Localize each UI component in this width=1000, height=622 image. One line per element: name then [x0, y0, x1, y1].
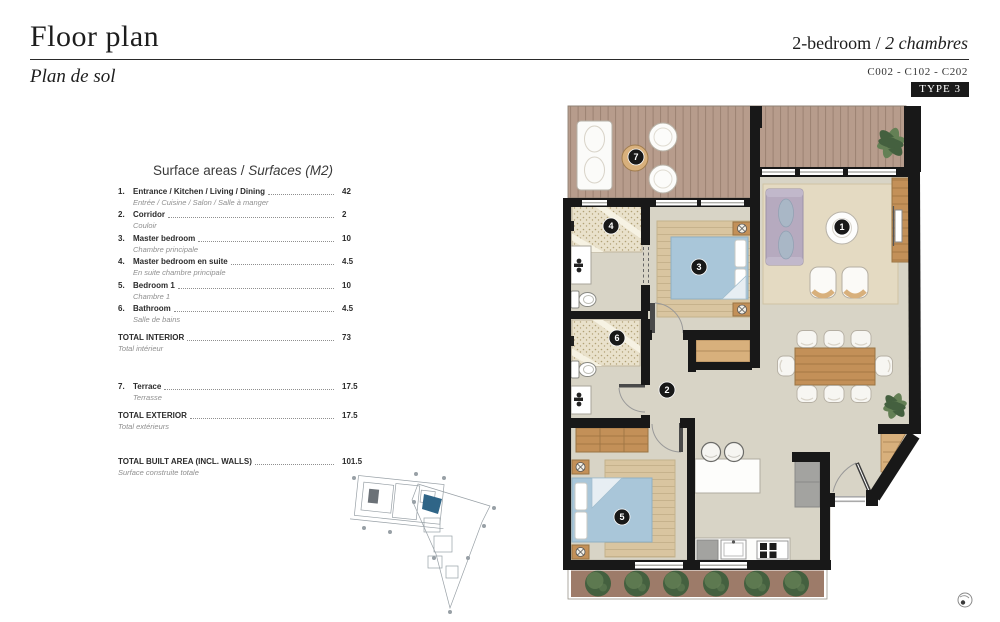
- label-en: Bedroom 1: [133, 281, 175, 291]
- label-fr: Total intérieur: [118, 344, 368, 353]
- dotted-leader: [164, 389, 334, 390]
- label-en: TOTAL INTERIOR: [118, 333, 184, 343]
- publisher-logo-icon: [958, 593, 972, 607]
- brochure-page: Floor plan Plan de sol 2-bedroom / 2 cha…: [0, 0, 1000, 622]
- surface-item-row: 6.Bathroom4.5Salle de bains: [118, 304, 368, 324]
- label-fr: Salle de bains: [133, 315, 368, 324]
- bush-icon: [744, 571, 770, 597]
- living-room: [763, 178, 909, 304]
- room-marker-5: 5: [614, 509, 630, 525]
- item-number: 2.: [118, 210, 133, 230]
- dining-chair: [851, 331, 871, 348]
- surface-areas-heading: Surface areas / Surfaces (M2): [118, 163, 368, 178]
- room-marker-7: 7: [628, 149, 644, 165]
- dotted-leader: [255, 464, 334, 465]
- label-fr: Total extérieurs: [118, 422, 368, 431]
- dotted-leader: [168, 217, 334, 218]
- label-fr: En suite chambre principale: [133, 268, 368, 277]
- svg-text:4: 4: [608, 221, 613, 231]
- svg-text:3: 3: [696, 262, 701, 272]
- surface-total-row: TOTAL EXTERIOR17.5Total extérieurs: [118, 411, 368, 431]
- dotted-leader: [198, 241, 334, 242]
- floor-plan-drawing: 1234567: [540, 95, 1000, 622]
- dining-chair: [876, 356, 893, 376]
- item-number: 1.: [118, 187, 133, 207]
- label-en: Entrance / Kitchen / Living / Dining: [133, 187, 265, 197]
- surface-rows: 1.Entrance / Kitchen / Living / Dining42…: [118, 187, 368, 478]
- door-leaf: [650, 303, 655, 333]
- pillow: [735, 240, 746, 267]
- area-value: 17.5: [337, 411, 368, 421]
- room-marker-1: 1: [834, 219, 850, 235]
- toilet-icon: [571, 361, 596, 378]
- dotted-leader: [190, 418, 334, 419]
- dining-chair: [778, 356, 795, 376]
- dining-chair: [797, 331, 817, 348]
- pillow: [575, 483, 587, 510]
- item-number: 6.: [118, 304, 133, 324]
- sun-lounger: [577, 121, 612, 190]
- planter-strip: [568, 568, 827, 599]
- fan-icon: [576, 463, 585, 472]
- highlighted-unit: [422, 494, 442, 514]
- dining-chair: [824, 386, 844, 403]
- master-bedroom: [650, 221, 757, 333]
- fridge: [795, 458, 820, 507]
- label-fr: Terrasse: [133, 393, 368, 402]
- label-fr: Chambre 1: [133, 292, 368, 301]
- pillow: [575, 512, 587, 539]
- header-rule: [30, 59, 969, 60]
- surface-heading-fr: Surfaces (M2): [248, 163, 333, 178]
- area-value: 10: [337, 281, 368, 291]
- wardrobe: [576, 427, 648, 452]
- dotted-leader: [268, 194, 334, 195]
- svg-text:2: 2: [664, 385, 669, 395]
- bush-icon: [783, 571, 809, 597]
- armchair: [842, 267, 868, 298]
- surface-total-row: TOTAL BUILT AREA (INCL. WALLS)101.5Surfa…: [118, 457, 368, 477]
- item-number: 7.: [118, 382, 133, 402]
- armchair: [810, 267, 836, 298]
- item-number: 3.: [118, 234, 133, 254]
- stove-icon: [757, 541, 788, 559]
- dotted-leader: [231, 264, 334, 265]
- room-marker-4: 4: [603, 218, 619, 234]
- fan-icon: [576, 548, 585, 557]
- bar-stool: [725, 443, 744, 462]
- sink-icon: [721, 540, 746, 559]
- unit-type-label: 2-bedroom / 2 chambres: [792, 33, 968, 54]
- label-en: Bathroom: [133, 304, 171, 314]
- item-number: 5.: [118, 281, 133, 301]
- dining-chair: [851, 386, 871, 403]
- svg-text:7: 7: [633, 152, 638, 162]
- svg-text:5: 5: [619, 512, 624, 522]
- label-en: Corridor: [133, 210, 165, 220]
- corridor-closet: [696, 340, 750, 362]
- svg-text:1: 1: [839, 222, 844, 232]
- room-marker-6: 6: [609, 330, 625, 346]
- area-value: 4.5: [337, 304, 368, 314]
- page-title: Floor plan: [30, 20, 159, 54]
- site-plan-thumbnail: [350, 462, 500, 614]
- tv-icon: [895, 210, 902, 242]
- label-en: Master bedroom: [133, 234, 195, 244]
- label-fr: Chambre principale: [133, 245, 368, 254]
- label-en: TOTAL EXTERIOR: [118, 411, 187, 421]
- bush-icon: [585, 571, 611, 597]
- svg-text:6: 6: [614, 333, 619, 343]
- terrace-chair: [649, 165, 677, 193]
- dotted-leader: [178, 288, 334, 289]
- fan-icon: [738, 305, 747, 314]
- terrace-chair: [649, 123, 677, 151]
- sofa-cushion: [779, 231, 794, 259]
- unit-type-en: 2-bedroom /: [792, 33, 885, 53]
- surface-item-row: 2.Corridor2Couloir: [118, 210, 368, 230]
- bush-icon: [663, 571, 689, 597]
- bar-stool: [702, 443, 721, 462]
- item-number: 4.: [118, 257, 133, 277]
- surface-item-row: 1.Entrance / Kitchen / Living / Dining42…: [118, 187, 368, 207]
- dotted-leader: [187, 340, 334, 341]
- label-fr: Surface construite totale: [118, 468, 368, 477]
- dotted-leader: [174, 311, 334, 312]
- label-fr: Couloir: [133, 221, 368, 230]
- surface-item-row: 3.Master bedroom10Chambre principale: [118, 234, 368, 254]
- page-subtitle: Plan de sol: [30, 66, 116, 88]
- bush-icon: [624, 571, 650, 597]
- fan-icon: [738, 224, 747, 233]
- area-value: 4.5: [337, 257, 368, 267]
- area-value: 42: [337, 187, 368, 197]
- surface-areas-table: Surface areas / Surfaces (M2) 1.Entrance…: [118, 163, 368, 481]
- bush-icon: [703, 571, 729, 597]
- label-fr: Entrée / Cuisine / Salon / Salle à mange…: [133, 198, 368, 207]
- surface-item-row: 4.Master bedroom en suite4.5En suite cha…: [118, 257, 368, 277]
- kitchen-island: [695, 459, 760, 493]
- room-marker-3: 3: [691, 259, 707, 275]
- room-marker-2: 2: [659, 382, 675, 398]
- unit-codes: C002 - C102 - C202: [867, 66, 968, 78]
- surface-item-row: 5.Bedroom 110Chambre 1: [118, 281, 368, 301]
- dishwasher: [697, 540, 718, 560]
- area-value: 2: [337, 210, 368, 220]
- surface-heading-en: Surface areas /: [153, 163, 248, 178]
- dining-table: [795, 348, 875, 385]
- sofa-cushion: [779, 199, 794, 227]
- dining-chair: [824, 331, 844, 348]
- label-en: Terrace: [133, 382, 161, 392]
- label-en: TOTAL BUILT AREA (INCL. WALLS): [118, 457, 252, 467]
- surface-item-row: 7.Terrace17.5Terrasse: [118, 382, 368, 402]
- area-value: 10: [337, 234, 368, 244]
- toilet-icon: [571, 291, 596, 308]
- area-value: 17.5: [337, 382, 368, 392]
- surface-total-row: TOTAL INTERIOR73Total intérieur: [118, 333, 368, 353]
- dining-chair: [797, 386, 817, 403]
- unit-type-fr: 2 chambres: [885, 33, 968, 53]
- area-value: 73: [337, 333, 368, 343]
- label-en: Master bedroom en suite: [133, 257, 228, 267]
